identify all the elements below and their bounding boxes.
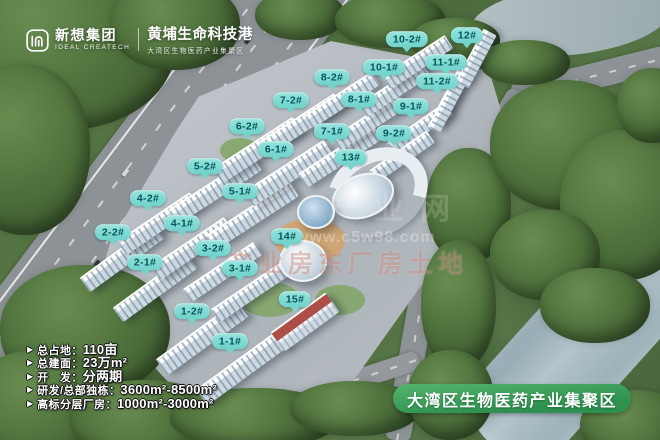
building-label-3-1: 3-1# [222,260,258,276]
cluster-banner: 大湾区生物医药产业集聚区 [393,384,631,413]
building-label-7-2: 7-2# [273,92,309,108]
stat-value: 23万m² [83,356,127,369]
building-label-4-1: 4-1# [164,215,200,231]
building-label-8-1: 8-1# [341,91,377,107]
project-title: 黄埔生命科技港 [147,27,253,43]
triangle-bullet-icon: ▶ [27,370,33,383]
building-label-6-2: 6-2# [229,118,265,134]
stat-row-2: ▶开 发：分两期 [27,370,217,383]
triangle-bullet-icon: ▶ [27,397,33,410]
building-label-2-2: 2-2# [95,224,131,240]
building-label-11-2: 11-2# [416,73,458,89]
stat-row-1: ▶总建面：23万m² [27,356,217,369]
aerial-rendering-poster: 产业网 www.c5w98.com 产业房东厂房土地 1-1#1-2#2-1#2… [0,0,660,440]
building-label-3-2: 3-2# [195,240,231,256]
building-label-9-1: 9-1# [393,98,429,114]
brand-name-en: IDEAL CREATECH [55,44,130,51]
building-label-1-1: 1-1# [212,333,248,349]
building-label-5-2: 5-2# [187,158,223,174]
building-label-10-1: 10-1# [363,59,405,75]
stat-label: 开 发： [37,372,83,385]
building-label-13: 13# [335,149,367,165]
stat-label: 研发/总部独栋： [37,385,120,398]
header-divider [138,28,139,51]
building-label-12: 12# [451,27,483,43]
brand-name: 新想集团 [55,27,130,43]
stat-value: 分两期 [83,370,123,383]
building-label-7-1: 7-1# [314,123,350,139]
building-label-8-2: 8-2# [314,69,350,85]
building-label-4-2: 4-2# [130,190,166,206]
building-label-11-1: 11-1# [425,54,467,70]
stats-panel: ▶总占地：110亩▶总建面：23万m²▶开 发：分两期▶研发/总部独栋：3600… [27,343,217,410]
building-label-6-1: 6-1# [258,141,294,157]
stat-row-4: ▶高标分层厂房：1000m²-3000m² [27,397,217,410]
project-subtitle: 大湾区生物医药产业集聚区 [147,45,253,55]
stat-label: 总建面： [37,358,83,371]
building-label-14: 14# [271,228,303,244]
stat-row-3: ▶研发/总部独栋：3600m²-8500m² [27,383,217,396]
triangle-bullet-icon: ▶ [27,383,33,396]
triangle-bullet-icon: ▶ [27,343,33,356]
building-label-15: 15# [279,291,311,307]
building-label-5-1: 5-1# [222,183,258,199]
building-label-9-2: 9-2# [376,125,412,141]
stat-value: 1000m²-3000m² [117,397,214,410]
stat-label: 总占地： [37,345,83,358]
triangle-bullet-icon: ▶ [27,356,33,369]
stat-label: 高标分层厂房： [37,399,117,412]
stat-value: 3600m²-8500m² [120,383,217,396]
building-label-10-2: 10-2# [386,31,428,47]
brand-bar: 新想集团 IDEAL CREATECH 黄埔生命科技港 大湾区生物医药产业集聚区 [26,27,253,55]
building-label-1-2: 1-2# [174,303,210,319]
building-label-2-1: 2-1# [127,254,163,270]
ideal-createch-logo-icon [26,28,49,53]
